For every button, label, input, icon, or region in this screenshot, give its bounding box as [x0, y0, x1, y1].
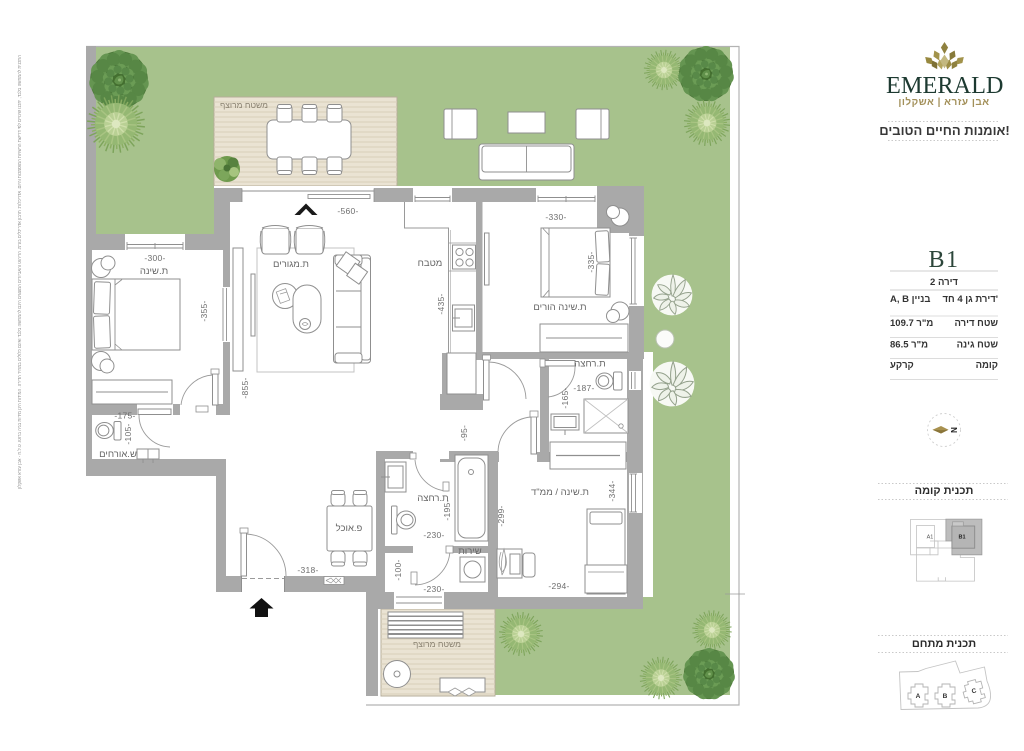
svg-text:ש.אורחים: ש.אורחים	[99, 449, 137, 460]
svg-text:תכנית מתחם: תכנית מתחם	[912, 638, 976, 650]
svg-text:-435-: -435-	[436, 293, 446, 314]
svg-text:תכנית קומה: תכנית קומה	[915, 485, 974, 497]
svg-text:2 דירה: 2 דירה	[930, 277, 958, 288]
svg-text:קומה: קומה	[976, 360, 998, 371]
svg-text:-230-: -230-	[423, 530, 444, 540]
svg-text:109.7 מ"ר: 109.7 מ"ר	[890, 318, 933, 329]
svg-text:-318-: -318-	[297, 565, 318, 575]
svg-text:86.5 מ"ר: 86.5 מ"ר	[890, 340, 928, 351]
svg-text:-560-: -560-	[337, 206, 358, 216]
svg-text:-187-: -187-	[573, 383, 594, 393]
svg-text:אומנות החיים הטובים!: אומנות החיים הטובים!	[879, 123, 1010, 138]
svg-text:אבן עזרא | אשקלון: אבן עזרא | אשקלון	[898, 96, 989, 108]
svg-text:ת.מגורים: ת.מגורים	[273, 259, 309, 270]
svg-text:-300-: -300-	[144, 253, 165, 263]
svg-text:A: A	[916, 693, 921, 700]
svg-text:-195-: -195-	[442, 499, 452, 520]
svg-text:ת.שינה / ממ"ד: ת.שינה / ממ"ד	[531, 487, 589, 498]
svg-text:שטח דירה: שטח דירה	[955, 318, 999, 329]
svg-text:-299-: -299-	[496, 505, 506, 526]
svg-text:B1: B1	[958, 535, 965, 541]
svg-text:-355-: -355-	[199, 300, 209, 321]
svg-text:-230-: -230-	[423, 584, 444, 594]
svg-text:ת.שינה: ת.שינה	[140, 266, 168, 277]
svg-text:-294-: -294-	[548, 581, 569, 591]
svg-text:משטח מרוצף: משטח מרוצף	[220, 100, 268, 110]
svg-text:-95-: -95-	[459, 425, 469, 441]
svg-text:-105-: -105-	[123, 423, 133, 444]
svg-text:משטח מרוצף: משטח מרוצף	[413, 639, 461, 649]
svg-text:-165-: -165-	[560, 387, 570, 408]
svg-text:A, B בניין: A, B בניין	[890, 294, 930, 305]
svg-text:קרקע: קרקע	[890, 360, 914, 371]
svg-text:-330-: -330-	[545, 212, 566, 222]
svg-text:-100-: -100-	[393, 559, 403, 580]
svg-text:A1: A1	[927, 535, 934, 541]
svg-text:ת.רחצה: ת.רחצה	[574, 359, 605, 370]
svg-text:EMERALD: EMERALD	[886, 72, 1004, 99]
svg-text:-344-: -344-	[607, 480, 617, 501]
svg-text:ת.שינה הורים: ת.שינה הורים	[533, 302, 586, 313]
svg-text:שטח גינה: שטח גינה	[957, 340, 999, 351]
svg-text:B1: B1	[928, 247, 959, 273]
svg-text:שירות: שירות	[458, 546, 482, 557]
svg-text:פ.אוכל: פ.אוכל	[336, 522, 363, 534]
svg-text:N: N	[949, 427, 958, 433]
svg-text:-855-: -855-	[240, 377, 250, 398]
svg-text:התכנית להמחשה בלבד, יתכנו שינו: התכנית להמחשה בלבד, יתכנו שינויים לפי דר…	[17, 55, 22, 489]
svg-text:דירת גן 4 חד': דירת גן 4 חד'	[943, 294, 999, 305]
svg-text:B: B	[943, 693, 948, 700]
svg-text:-335-: -335-	[586, 251, 596, 272]
svg-text:מטבח: מטבח	[418, 258, 443, 269]
svg-text:-175-: -175-	[114, 411, 135, 421]
